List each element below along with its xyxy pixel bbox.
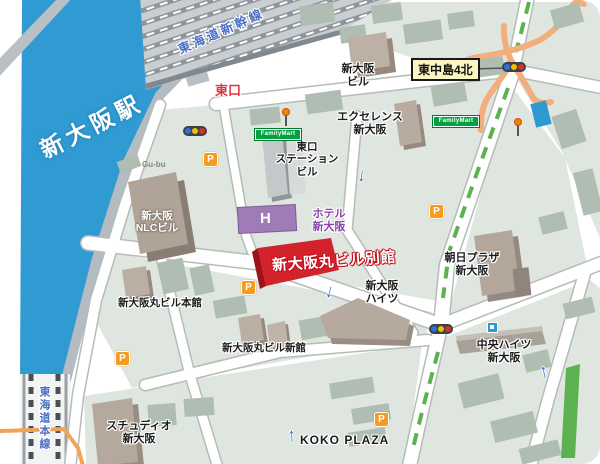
east-exit-label: 東口	[215, 83, 241, 98]
excellence-label: エクセレンス 新大阪	[330, 111, 410, 137]
signal-pole-icon	[514, 118, 522, 136]
hotel-label: ホテル 新大阪	[298, 208, 360, 234]
parking-icon: P	[429, 204, 444, 219]
familymart-sign-west: FamilyMart	[254, 128, 302, 141]
shop-label: Gu-bu	[142, 160, 166, 169]
map-canvas: 新大阪駅 東海道新幹線 東海道本線 東口 東中島4北 新大阪 ビル エクセレンス…	[0, 0, 600, 464]
intersection-sign: 東中島4北	[411, 58, 480, 81]
signal-pole-icon	[282, 108, 290, 126]
parking-icon: P	[115, 351, 130, 366]
one-way-arrow-up: ↑	[287, 426, 296, 445]
traffic-light-icon	[183, 126, 207, 136]
traffic-light-icon	[502, 62, 526, 72]
hotel-h-icon: H	[260, 210, 271, 227]
parking-icon: P	[203, 152, 218, 167]
east-exit-station-bldg-label: 東口 ステーション ビル	[270, 141, 344, 178]
traffic-light-icon	[429, 324, 453, 334]
tokaido-main-label: 東海道本線	[37, 386, 50, 451]
shin-osaka-bldg-label: 新大阪 ビル	[332, 63, 384, 89]
studio-label: スチュディオ 新大阪	[100, 420, 178, 446]
heights-label: 新大阪 ハイツ	[352, 280, 412, 306]
parking-icon: P	[374, 412, 389, 427]
parking-icon: P	[241, 280, 256, 295]
familymart-sign-east: FamilyMart	[432, 115, 480, 128]
chuo-heights-label: 中央ハイツ 新大阪	[466, 339, 542, 365]
maru-honkan-label: 新大阪丸ビル本館	[118, 297, 202, 309]
asahi-plaza-label: 朝日プラザ 新大阪	[436, 252, 508, 278]
small-marker-icon	[487, 322, 498, 333]
maru-shinkan-label: 新大阪丸ビル新館	[222, 342, 306, 354]
nlc-label: 新大阪 NLCビル	[128, 210, 186, 235]
koko-plaza-label: KOKO PLAZA	[300, 433, 389, 447]
